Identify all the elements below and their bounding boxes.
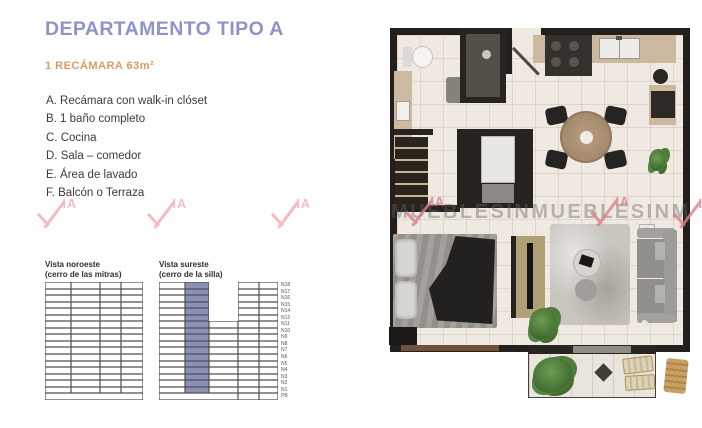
bathroom-sink [396,101,410,121]
feature-item: D. Sala – comedor [46,147,207,165]
via-logo-watermark: IA [146,197,188,233]
table-row [45,393,143,400]
coffee-table-small [575,279,597,301]
availability-grid-noroeste [45,282,143,400]
via-logo-watermark: IA [589,195,631,231]
bedroom-window [401,345,499,351]
sofa-pillow [655,242,665,260]
tv [527,243,533,309]
via-logo-watermark: IA [270,197,312,233]
lounge-chair [625,374,656,391]
page-title: DEPARTAMENTO TIPO A [45,18,284,41]
wood-chair [663,358,688,394]
table-cell [159,393,238,400]
burner [551,57,561,67]
floor-label-column: N18N17N16N15N14N12N11N10N9N8N7N6N5N4N3N2… [281,282,311,400]
feature-item: B. 1 baño completo [46,110,207,128]
sofa-back [663,230,677,322]
feature-list: A. Recámara con walk-in clósetB. 1 baño … [46,92,207,202]
bathroom-wall [394,129,433,135]
unit-summary: 1 RECÁMARA 63m² [45,60,154,72]
pillows [395,239,417,277]
table-cell [45,393,143,400]
table-title-sureste: Vista sureste (cerro de la silla) [159,260,223,279]
brochure-page: DEPARTAMENTO TIPO A 1 RECÁMARA 63m² A. R… [0,0,702,428]
sink-divider [619,38,620,59]
toilet [412,46,433,68]
closet-mirror [481,136,515,183]
table-cell [238,393,259,400]
burner [569,57,579,67]
feature-item: C. Cocina [46,129,207,147]
floor-label: PB [281,393,311,400]
faucet [616,36,622,40]
burner [569,41,579,51]
shower [460,28,506,103]
feature-item: E. Área de lavado [46,166,207,184]
nightstand [389,327,417,345]
door-mat [573,346,631,353]
cooktop [651,91,675,118]
shower-head [482,50,491,59]
table-plate [580,131,593,144]
via-logo-watermark: IA [672,197,702,233]
pillows [395,281,417,319]
table-title-noroeste: Vista noroeste (cerro de las mitras) [45,260,121,279]
via-logo-watermark: IA [36,197,78,233]
toilet-tank [403,47,412,67]
burner [551,41,561,51]
table-cell [259,393,278,400]
via-logo-watermark: IA [404,195,446,231]
sofa-pillow [655,285,665,303]
availability-grid-sureste: N18N17N16N15N14N12N11N10N9N8N7N6N5N4N3N2… [159,282,311,400]
kitchen-pot [653,69,668,84]
feature-item: A. Recámara con walk-in clóset [46,92,207,110]
sofa-flower [641,320,648,327]
